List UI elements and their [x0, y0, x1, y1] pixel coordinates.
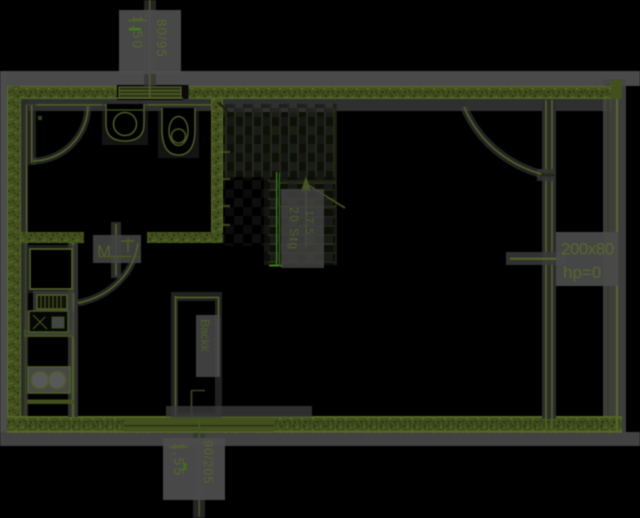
svg-text:90/205: 90/205 [201, 440, 215, 484]
svg-text:20 Stg: 20 Stg [287, 207, 301, 251]
svg-text:M: M [97, 242, 111, 261]
svg-text:Backk: Backk [198, 319, 212, 353]
svg-text:hp=0: hp=0 [563, 263, 601, 282]
svg-text:17,5: 17,5 [303, 210, 315, 235]
svg-text:80/95: 80/95 [154, 19, 169, 58]
svg-text:200x80: 200x80 [561, 240, 614, 259]
